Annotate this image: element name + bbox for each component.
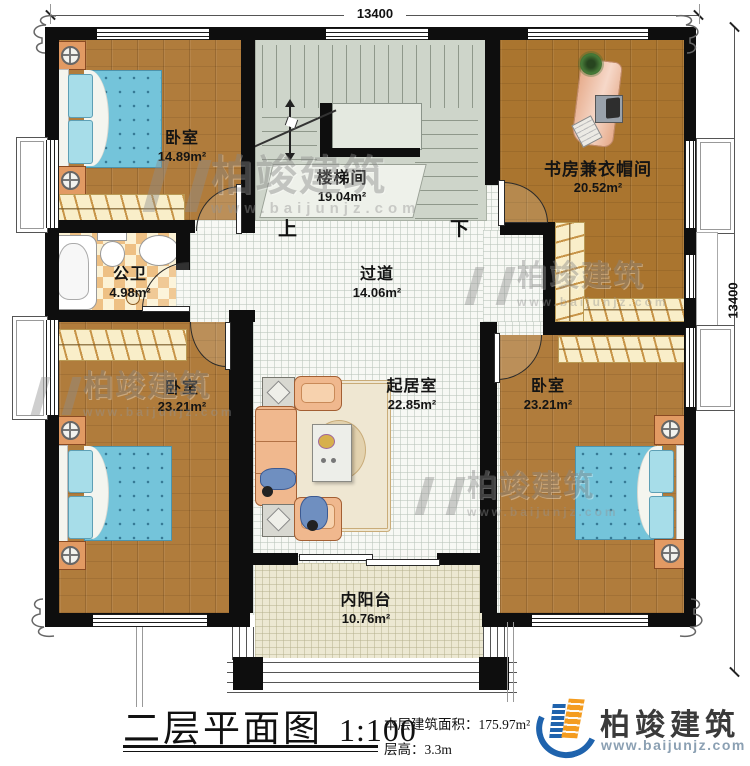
bathroom-sink: [139, 235, 179, 266]
wardrobe: [558, 336, 686, 363]
floor-area-text: 本层建筑面积：175.97m²: [384, 713, 530, 733]
hallway-floor-east: [483, 230, 543, 322]
window: [528, 28, 648, 40]
bed-pillow: [649, 450, 674, 493]
table-flowers-icon: [318, 434, 335, 449]
nightstand: [55, 541, 86, 570]
room-label-stairwell: 楼梯间19.04m²: [292, 170, 392, 204]
bay-window: [696, 325, 735, 411]
wall-living-balcony-right: [437, 553, 482, 565]
door-leaf: [498, 180, 505, 226]
door-leaf: [225, 322, 231, 370]
title-underline: [123, 745, 378, 748]
window: [326, 28, 428, 40]
table-dot: [321, 458, 326, 463]
wall-living-balcony-left: [253, 553, 298, 565]
room-label-bedroom-bottom-right: 卧室23.21m²: [498, 378, 598, 412]
balcony-railing-right: [483, 627, 506, 660]
projection-line: [142, 627, 143, 707]
bay-window: [696, 138, 735, 234]
window: [93, 614, 207, 627]
coffee-table: [312, 424, 352, 482]
bed-pillow: [68, 74, 93, 118]
sliding-door-panel: [299, 554, 373, 561]
bedside-lamp-icon: [661, 420, 680, 439]
wall-bedroomTL-bottom: [45, 220, 195, 233]
axis-marker-icon: [672, 598, 708, 638]
nightstand: [55, 416, 86, 445]
wall-outer-right: [684, 27, 696, 627]
wall-bedroomBL-living: [229, 322, 253, 613]
bed-pillow: [68, 120, 93, 164]
cloakroom-wardrobe-horizontal: [583, 298, 685, 322]
nightstand: [55, 166, 86, 195]
armchair: [294, 376, 342, 411]
projection-line: [507, 622, 508, 702]
wall-cloakroom-bedroomBR: [543, 322, 684, 335]
cloakroom-wardrobe-vertical: [555, 222, 585, 322]
person-head: [262, 486, 273, 497]
brand-logo-icon: [536, 690, 596, 756]
door-leaf: [142, 306, 190, 312]
wall-bedroomTL-stair: [241, 39, 255, 233]
door-leaf: [236, 184, 242, 234]
bay-window: [12, 316, 48, 420]
wardrobe: [58, 329, 187, 361]
monitor-crt: [606, 97, 620, 118]
drawing-title: 二层平面图1:100: [123, 698, 417, 752]
bedside-lamp-icon: [61, 421, 80, 440]
wall-hall-cloakroom: [543, 222, 555, 327]
armchair-cushion: [301, 383, 335, 403]
bay-window: [16, 137, 48, 233]
balcony-column: [479, 657, 509, 690]
stair-arrow-up-icon: [285, 99, 295, 107]
brand-url: www.baijunjz.com: [601, 737, 746, 753]
nightstand: [654, 415, 686, 445]
bedside-lamp-icon: [61, 171, 80, 190]
stair-arrow-down-icon: [285, 153, 295, 161]
table-dot: [331, 458, 336, 463]
wall-stair-study: [485, 39, 500, 185]
title-underline-thin: [123, 751, 378, 752]
bed-pillow: [68, 450, 93, 493]
nightstand: [654, 539, 686, 569]
window: [46, 140, 59, 228]
balcony-railing-left: [232, 627, 255, 660]
projection-line: [513, 622, 514, 702]
stair-up-label: 上: [278, 214, 297, 241]
window: [685, 328, 696, 407]
stair-landing: [332, 103, 422, 150]
projection-line: [136, 627, 137, 707]
person-head: [307, 520, 318, 531]
bedside-lamp-icon: [661, 544, 680, 563]
plant-icon: [580, 53, 602, 75]
bedside-lamp-icon: [61, 546, 80, 565]
dimension-top-value: 13400: [344, 6, 406, 21]
floor-height-text: 层高：3.3m: [384, 738, 452, 758]
side-table: [262, 504, 295, 537]
bed-pillow: [649, 496, 674, 539]
dimension-right-value: 13400: [726, 270, 741, 332]
dimension-line-right: [734, 28, 735, 673]
room-label-living: 起居室22.85m²: [362, 378, 462, 412]
stair-landing-wall-bottom: [320, 148, 420, 157]
room-label-balcony: 内阳台10.76m²: [316, 592, 416, 626]
wall-study-hall-stub: [500, 222, 543, 235]
wall-stub: [229, 310, 255, 322]
window: [685, 141, 696, 228]
window: [532, 614, 648, 627]
room-label-bathroom: 公卫4.98m²: [80, 266, 180, 300]
stair-down-label: 下: [450, 214, 469, 241]
sliding-door-panel: [366, 559, 440, 566]
window: [97, 28, 209, 40]
axis-marker-icon: [28, 14, 64, 54]
side-table-top: [266, 507, 290, 531]
side-table-top: [266, 380, 290, 404]
room-label-hallway: 过道14.06m²: [327, 266, 427, 300]
floor-plan-canvas: 卧室14.89m² 楼梯间19.04m² 书房兼衣帽间20.52m² 公卫4.9…: [0, 0, 750, 766]
balcony-railing-bottom: [227, 660, 517, 693]
window: [46, 320, 59, 415]
room-label-study: 书房兼衣帽间20.52m²: [518, 160, 678, 195]
window: [685, 255, 696, 298]
axis-marker-icon: [668, 14, 704, 54]
axis-marker-icon: [26, 598, 62, 638]
room-label-bedroom-top-left: 卧室14.89m²: [132, 130, 232, 164]
bed-pillow: [68, 496, 93, 539]
toilet-bowl: [100, 241, 125, 267]
door-leaf: [494, 333, 500, 383]
room-label-bedroom-bottom-left: 卧室23.21m²: [132, 380, 232, 414]
bay-window-sill: [696, 232, 718, 327]
balcony-column: [233, 657, 263, 690]
